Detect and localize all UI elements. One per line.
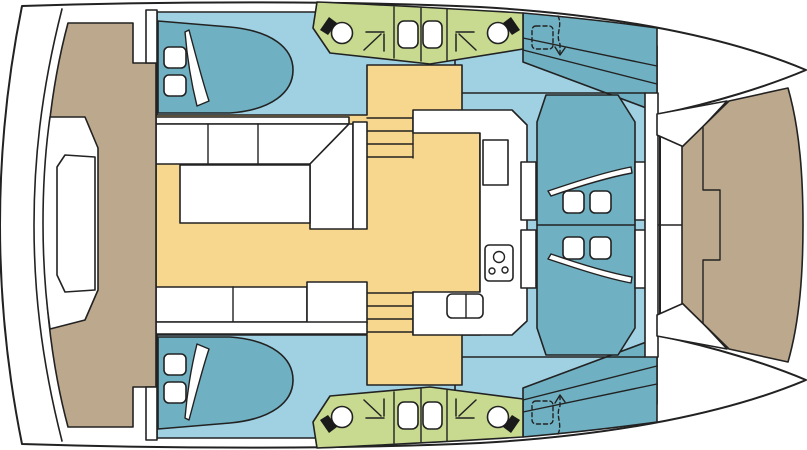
pillow	[164, 47, 186, 68]
berth-shelf	[521, 162, 536, 220]
shower-tray	[423, 402, 442, 429]
foredeck-lounge	[682, 88, 803, 362]
pillow	[590, 237, 611, 259]
pillow	[563, 237, 584, 259]
nav-seat	[307, 282, 367, 323]
catamaran-floorplan	[0, 0, 807, 450]
saloon-table	[180, 165, 310, 223]
cockpit-side-gate	[146, 10, 157, 63]
shower-tray	[423, 21, 442, 48]
cockpit-table	[57, 155, 95, 292]
shower-tray	[398, 402, 418, 429]
saloon-side-cabinet	[353, 122, 367, 229]
saloon-sofa-back	[156, 117, 349, 124]
pillow	[164, 382, 186, 403]
pillow	[590, 191, 611, 213]
pillow	[563, 191, 584, 213]
forward-bulkhead	[645, 93, 658, 357]
sink	[447, 294, 483, 318]
cockpit-side-gate	[146, 387, 157, 440]
pillow	[164, 75, 186, 96]
galley-cabinet	[483, 140, 508, 185]
floorplan-svg	[0, 0, 807, 450]
saloon-bench-seat	[156, 287, 307, 322]
shower-tray	[398, 21, 418, 48]
pillow	[164, 354, 186, 375]
berth-shelf	[521, 230, 536, 288]
saloon-bench-back	[156, 322, 367, 334]
